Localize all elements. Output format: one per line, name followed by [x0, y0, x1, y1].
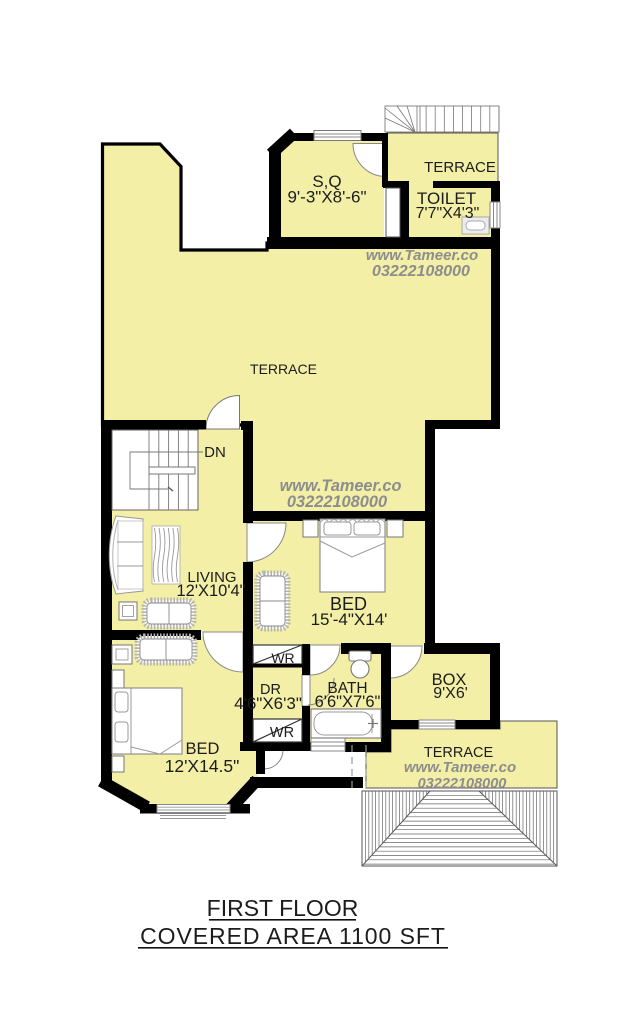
svg-text:9'-3"X8'-6": 9'-3"X8'-6"	[287, 188, 366, 207]
svg-text:6'6"X7'6": 6'6"X7'6"	[315, 693, 381, 711]
svg-text:FIRST FLOOR: FIRST FLOOR	[207, 895, 359, 921]
svg-text:DN: DN	[204, 444, 226, 461]
svg-text:7'7"X4'3": 7'7"X4'3"	[416, 205, 480, 222]
svg-text:TERRACE: TERRACE	[424, 159, 496, 176]
svg-text:WR: WR	[271, 650, 294, 666]
svg-text:03222108000: 03222108000	[372, 263, 470, 280]
svg-text:www.Tameer.co: www.Tameer.co	[366, 247, 478, 264]
svg-text:15'-4"X14': 15'-4"X14'	[311, 610, 388, 629]
svg-text:12'X10'4": 12'X10'4"	[176, 582, 245, 600]
svg-text:03222108000: 03222108000	[418, 776, 507, 792]
svg-text:COVERED AREA 1100 SFT: COVERED AREA 1100 SFT	[140, 923, 446, 949]
svg-text:4'6"X6'3": 4'6"X6'3"	[234, 694, 302, 713]
svg-text:TERRACE: TERRACE	[250, 361, 317, 377]
svg-text:www.Tameer.co: www.Tameer.co	[404, 759, 516, 776]
svg-text:12'X14.5": 12'X14.5"	[165, 756, 240, 776]
svg-text:9'X6': 9'X6'	[433, 685, 468, 702]
svg-text:WR: WR	[270, 725, 294, 741]
svg-text:03222108000: 03222108000	[287, 493, 387, 511]
